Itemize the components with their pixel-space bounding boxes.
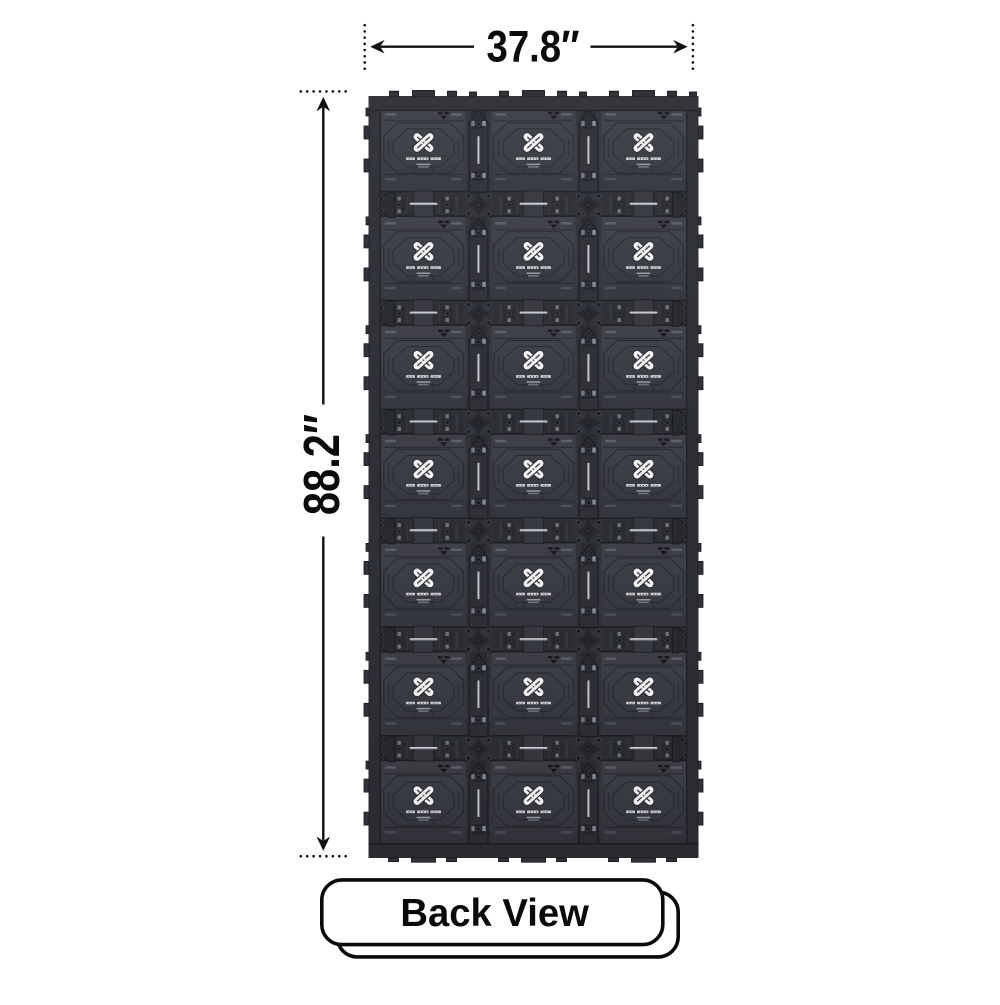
svg-text:Back View: Back View: [400, 892, 589, 935]
svg-text:37.8″: 37.8″: [487, 23, 580, 72]
svg-text:88.2″: 88.2″: [293, 414, 350, 515]
